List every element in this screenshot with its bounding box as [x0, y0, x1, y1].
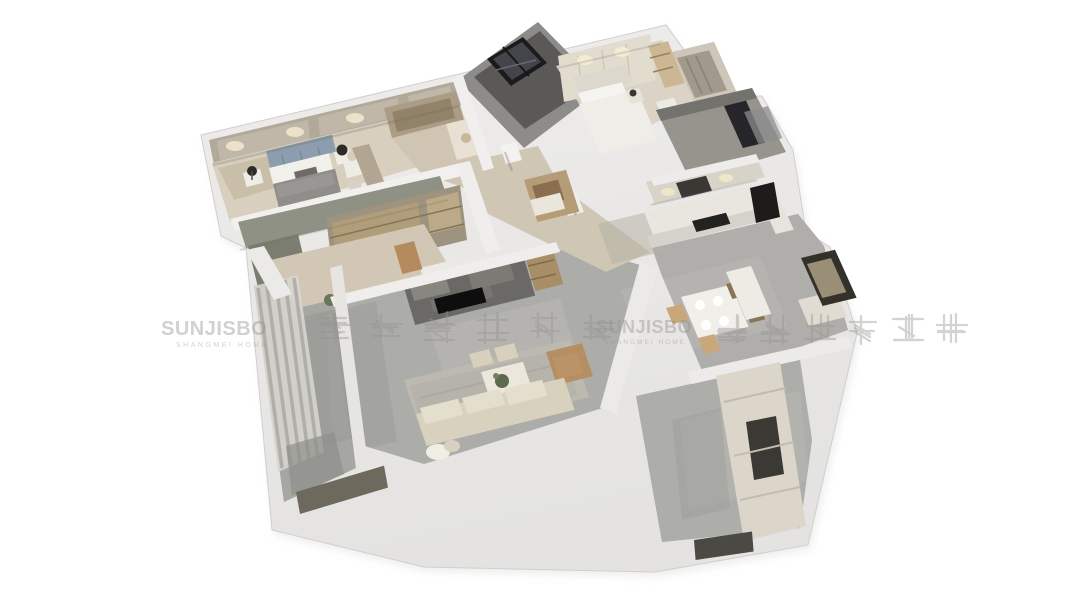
- svg-text:SHANGMEI HOME: SHANGMEI HOME: [176, 342, 269, 349]
- svg-text:SUNJISBO: SUNJISBO: [596, 317, 692, 337]
- svg-text:SUNJISBO: SUNJISBO: [161, 318, 267, 340]
- svg-text:SHANGMEI HOME: SHANGMEI HOME: [604, 339, 686, 346]
